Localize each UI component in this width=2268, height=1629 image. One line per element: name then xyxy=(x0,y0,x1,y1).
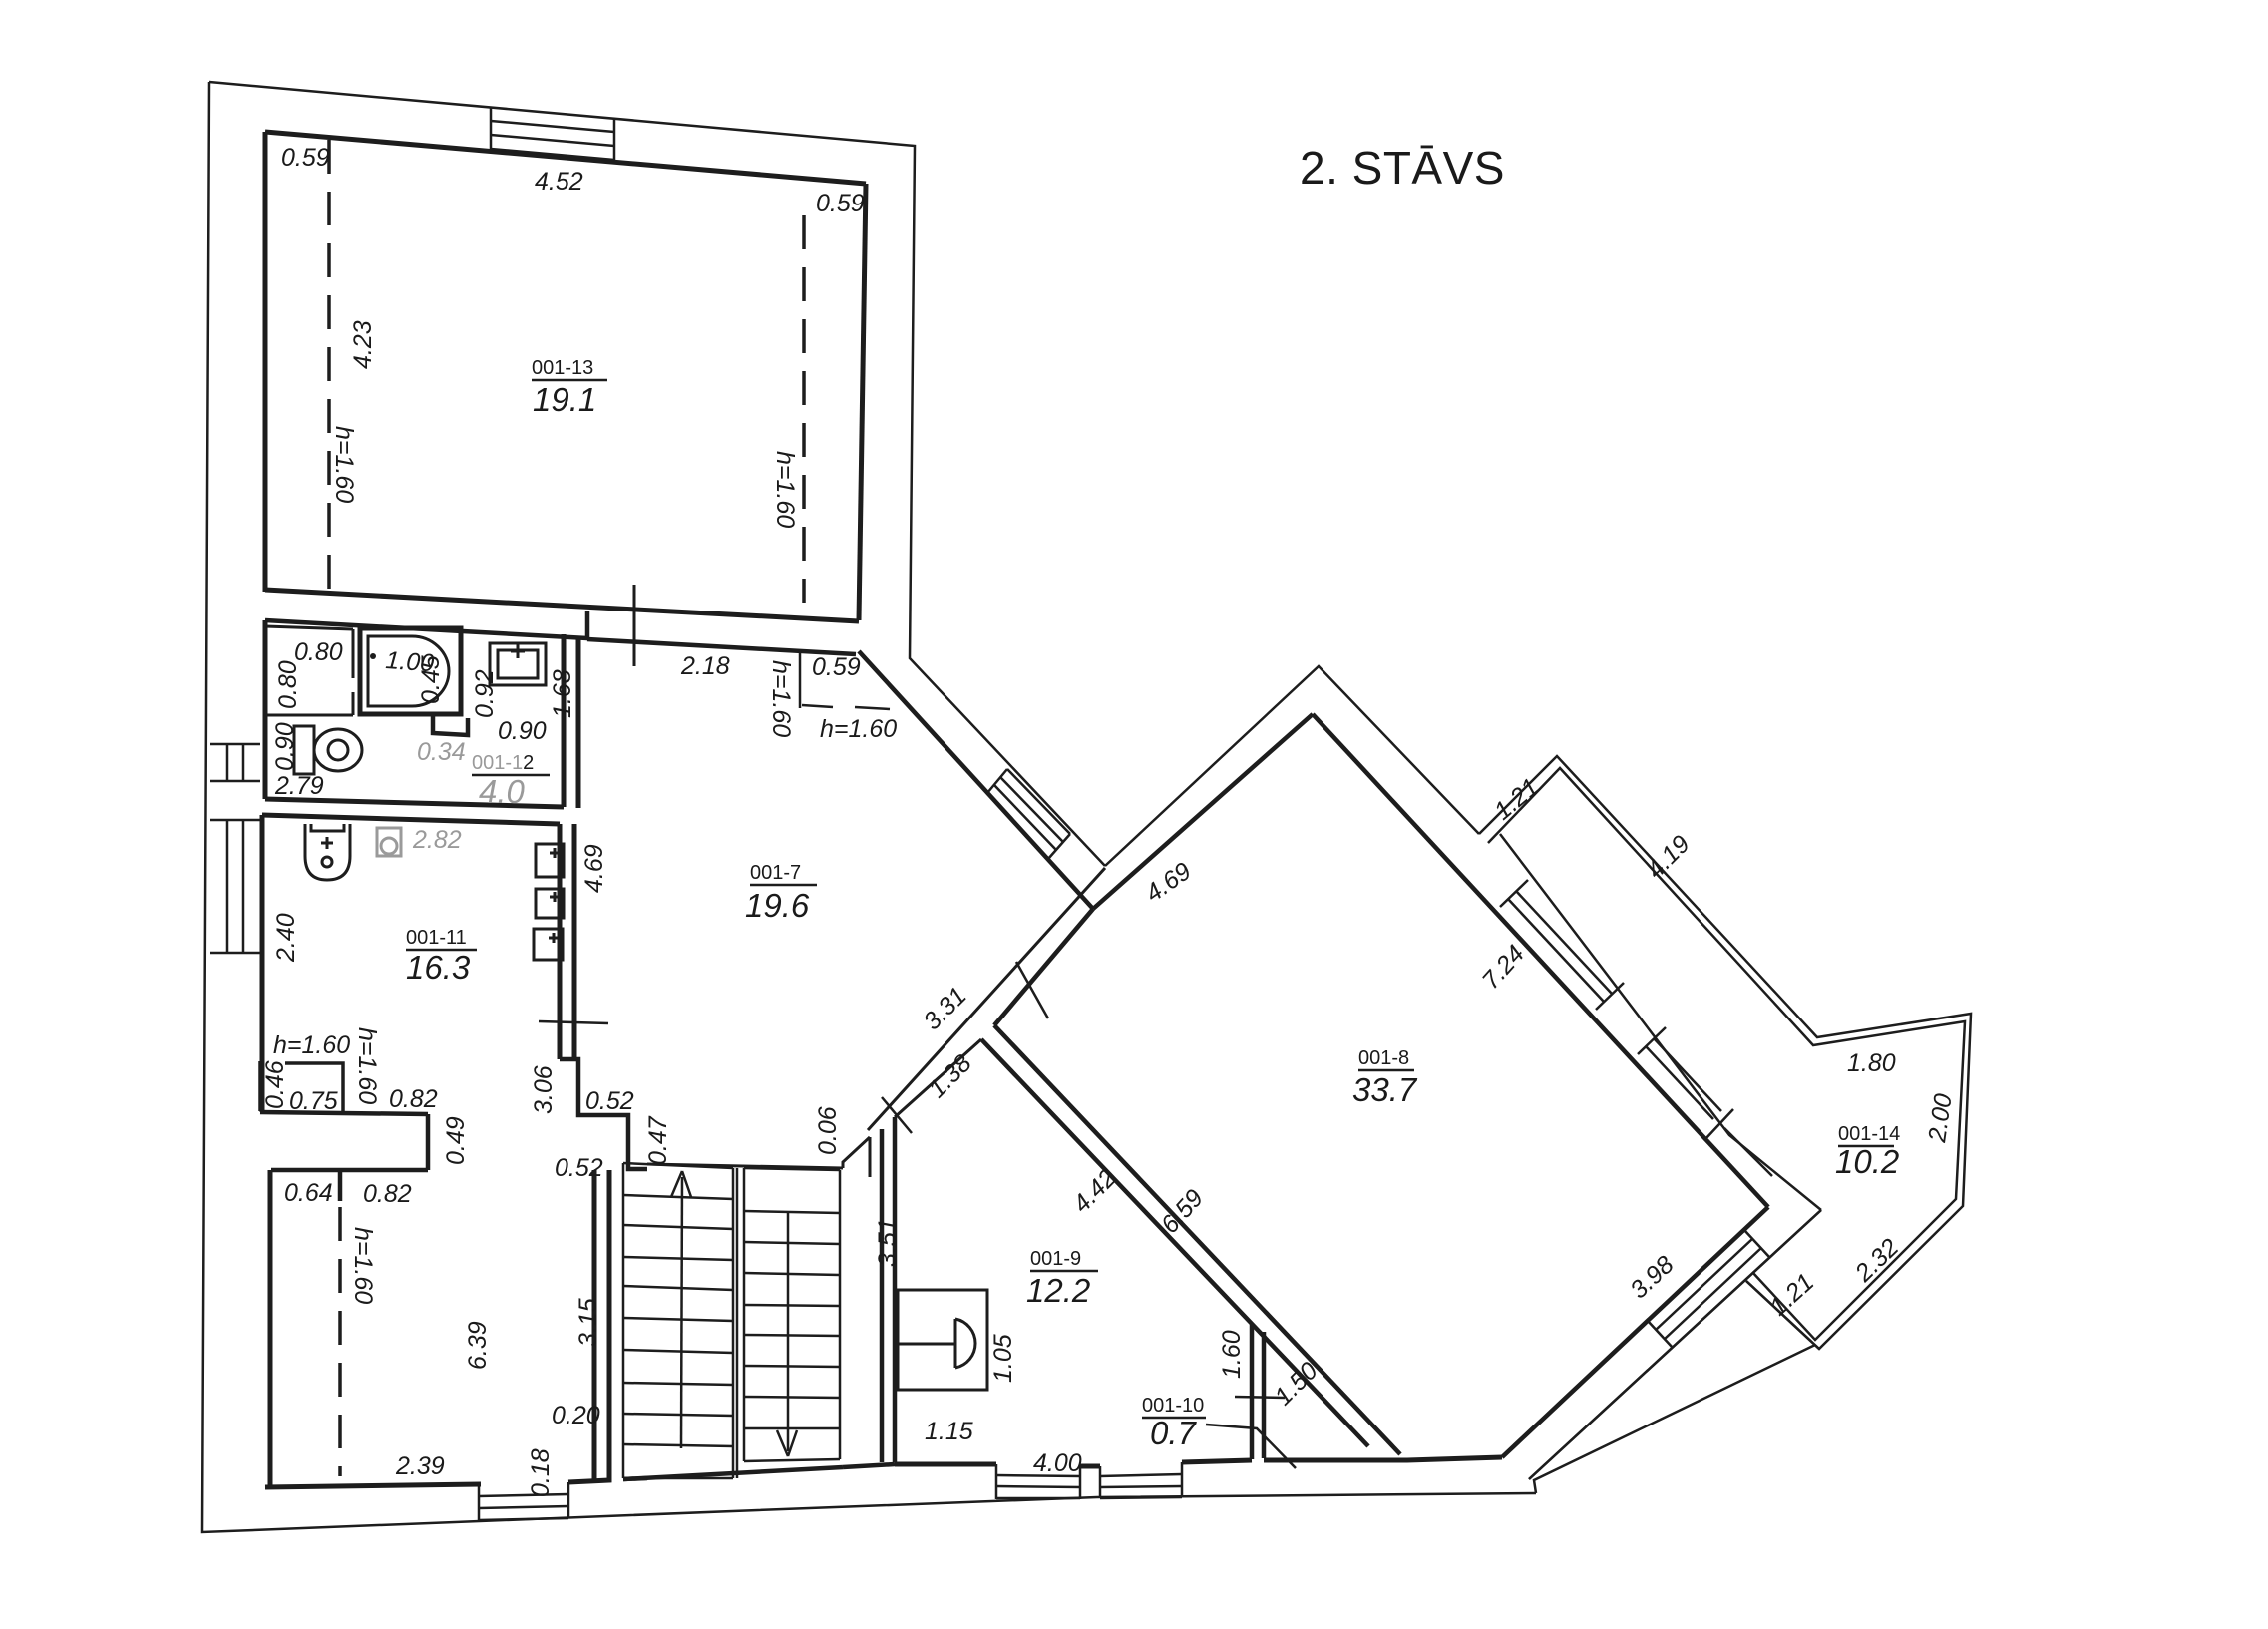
svg-text:0.82: 0.82 xyxy=(363,1180,412,1208)
svg-text:001-7: 001-7 xyxy=(750,862,801,884)
svg-text:0.06: 0.06 xyxy=(814,1106,842,1155)
svg-text:19.6: 19.6 xyxy=(745,887,810,924)
svg-text:19.1: 19.1 xyxy=(533,381,596,418)
svg-text:0.20: 0.20 xyxy=(552,1402,600,1429)
svg-text:h=1.60: h=1.60 xyxy=(353,1027,381,1104)
svg-text:6.39: 6.39 xyxy=(464,1321,492,1370)
svg-text:h=1.60: h=1.60 xyxy=(349,1227,377,1304)
svg-text:3.51: 3.51 xyxy=(874,1218,902,1267)
svg-text:4.69: 4.69 xyxy=(580,844,608,893)
svg-text:16.3: 16.3 xyxy=(406,949,471,986)
svg-text:001-14: 001-14 xyxy=(1838,1123,1900,1145)
svg-text:4.23: 4.23 xyxy=(349,320,377,369)
svg-text:0.59: 0.59 xyxy=(281,144,330,172)
svg-text:h=1.60: h=1.60 xyxy=(771,451,799,528)
svg-text:0.45: 0.45 xyxy=(417,655,445,704)
svg-text:0.49: 0.49 xyxy=(442,1116,470,1165)
svg-text:0.46: 0.46 xyxy=(261,1060,289,1109)
svg-text:1.21: 1.21 xyxy=(1764,1268,1819,1321)
svg-text:1.68: 1.68 xyxy=(549,669,576,718)
svg-text:1.80: 1.80 xyxy=(1847,1049,1896,1077)
svg-text:0.80: 0.80 xyxy=(274,660,302,709)
svg-text:1.21: 1.21 xyxy=(1489,773,1544,826)
svg-text:2.00: 2.00 xyxy=(1923,1092,1958,1145)
svg-text:1.05: 1.05 xyxy=(989,1334,1017,1383)
svg-text:h=1.60: h=1.60 xyxy=(820,715,897,743)
svg-text:3.06: 3.06 xyxy=(530,1065,558,1114)
svg-text:2.82: 2.82 xyxy=(412,826,462,854)
svg-text:0.52: 0.52 xyxy=(585,1087,634,1115)
svg-text:0.90: 0.90 xyxy=(271,722,299,771)
svg-text:0.18: 0.18 xyxy=(527,1448,555,1497)
svg-text:2.18: 2.18 xyxy=(680,652,730,680)
svg-text:4.19: 4.19 xyxy=(1641,830,1695,884)
svg-text:0.59: 0.59 xyxy=(812,653,861,681)
svg-text:4.52: 4.52 xyxy=(535,168,583,196)
svg-text:001-13: 001-13 xyxy=(532,357,593,379)
svg-text:0.92: 0.92 xyxy=(471,669,499,718)
svg-text:001-10: 001-10 xyxy=(1142,1395,1204,1417)
svg-text:0.7: 0.7 xyxy=(1150,1415,1198,1451)
svg-text:10.2: 10.2 xyxy=(1835,1143,1899,1180)
svg-text:1.38: 1.38 xyxy=(923,1049,976,1103)
svg-text:12.2: 12.2 xyxy=(1026,1272,1090,1309)
svg-text:4.00: 4.00 xyxy=(1033,1449,1082,1477)
svg-text:0.34: 0.34 xyxy=(417,738,466,766)
svg-text:001-9: 001-9 xyxy=(1030,1248,1081,1270)
svg-text:h=1.60: h=1.60 xyxy=(273,1031,350,1059)
svg-text:h=1.60: h=1.60 xyxy=(330,426,358,503)
svg-text:4.42: 4.42 xyxy=(1067,1164,1121,1218)
svg-text:3.31: 3.31 xyxy=(918,982,971,1035)
svg-text:001-12: 001-12 xyxy=(472,752,534,774)
svg-text:3.15: 3.15 xyxy=(574,1298,602,1347)
svg-text:1.15: 1.15 xyxy=(925,1418,973,1445)
svg-text:001-8: 001-8 xyxy=(1358,1047,1409,1069)
svg-text:001-11: 001-11 xyxy=(406,927,467,949)
svg-text:7.24: 7.24 xyxy=(1477,940,1530,995)
svg-text:2.79: 2.79 xyxy=(274,772,324,800)
svg-text:4.0: 4.0 xyxy=(479,773,526,810)
svg-text:2. STĀVS: 2. STĀVS xyxy=(1300,142,1505,194)
svg-text:2.40: 2.40 xyxy=(272,913,300,963)
svg-text:0.59: 0.59 xyxy=(816,190,865,217)
svg-text:0.64: 0.64 xyxy=(284,1179,333,1207)
svg-text:0.82: 0.82 xyxy=(389,1085,438,1113)
svg-text:33.7: 33.7 xyxy=(1352,1071,1418,1108)
svg-text:2.39: 2.39 xyxy=(395,1452,445,1480)
svg-text:0.75: 0.75 xyxy=(289,1087,338,1115)
svg-text:h=1.60: h=1.60 xyxy=(767,660,795,737)
svg-text:0.90: 0.90 xyxy=(498,717,547,745)
svg-text:0.52: 0.52 xyxy=(555,1154,603,1182)
svg-text:2.32: 2.32 xyxy=(1849,1233,1904,1288)
svg-text:0.47: 0.47 xyxy=(644,1115,672,1165)
svg-text:4.69: 4.69 xyxy=(1140,857,1196,908)
svg-text:1.60: 1.60 xyxy=(1218,1330,1246,1379)
